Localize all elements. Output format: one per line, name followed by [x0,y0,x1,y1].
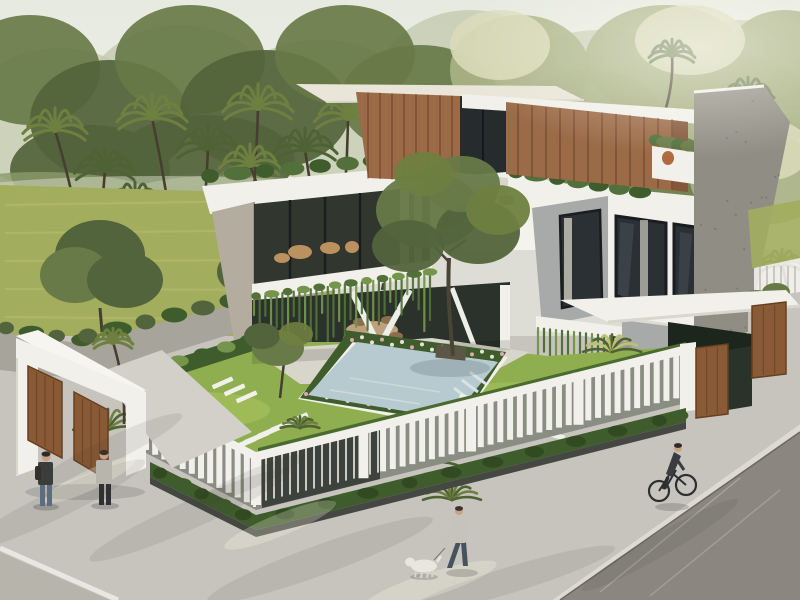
architectural-rendering [0,0,800,600]
villa-rendering-canvas [0,0,800,600]
